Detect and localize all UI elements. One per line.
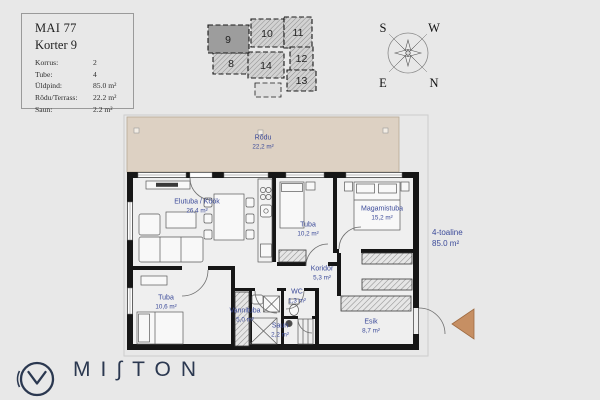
compass-label-w: W [428, 21, 440, 35]
minimap-unit-label: 11 [293, 27, 304, 39]
apartment-summary: 4-toaline 85.0 m² [432, 228, 463, 250]
compass-label-s: S [380, 21, 387, 35]
minimap-unit-label: 10 [261, 28, 273, 40]
minimap-unit-label: 14 [260, 60, 272, 72]
minimap-unit-label: 9 [225, 34, 231, 46]
floor-plan [124, 115, 474, 356]
compass-label-n: N [429, 76, 438, 90]
apartment-area: 85.0 m² [432, 239, 463, 250]
floor-plan-canvas: 9 10 11 8 14 12 13 S W E N [0, 0, 600, 400]
minimap-unit-label: 12 [296, 53, 308, 65]
balcony-area [127, 117, 399, 172]
building-minimap: 9 10 11 8 14 12 13 [208, 17, 316, 97]
brand-name: MI∫TON [73, 358, 206, 382]
compass-rose-icon: S W E N [379, 21, 440, 90]
apartment-type: 4-toaline [432, 228, 463, 239]
miston-logo: MI∫TON [16, 358, 206, 382]
compass-label-e: E [379, 76, 387, 90]
minimap-unit-label: 8 [228, 58, 234, 70]
minimap-unit-label: 13 [296, 75, 308, 87]
entrance-arrow-icon [452, 309, 474, 339]
